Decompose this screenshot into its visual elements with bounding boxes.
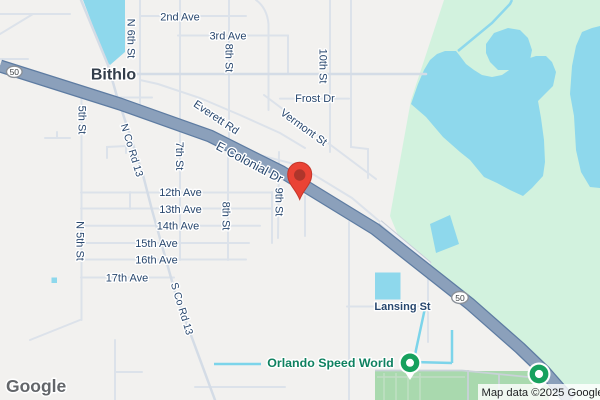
svg-text:Lansing St: Lansing St — [374, 301, 431, 313]
svg-text:13th Ave: 13th Ave — [159, 204, 202, 216]
svg-text:Orlando Speed World: Orlando Speed World — [267, 356, 393, 370]
svg-text:Map data ©2025 Google: Map data ©2025 Google — [482, 387, 600, 399]
svg-text:12th Ave: 12th Ave — [159, 187, 202, 199]
svg-text:14th Ave: 14th Ave — [157, 221, 200, 233]
svg-text:9th St: 9th St — [273, 188, 285, 217]
svg-text:15th Ave: 15th Ave — [135, 238, 178, 250]
svg-text:16th Ave: 16th Ave — [135, 255, 178, 267]
svg-text:8th St: 8th St — [220, 202, 232, 231]
svg-text:17th Ave: 17th Ave — [106, 272, 149, 284]
svg-text:2nd Ave: 2nd Ave — [160, 12, 200, 24]
svg-text:N 6th St: N 6th St — [125, 19, 137, 59]
svg-text:Frost Dr: Frost Dr — [295, 93, 335, 105]
svg-text:10th St: 10th St — [317, 49, 329, 84]
svg-text:50: 50 — [455, 293, 465, 303]
svg-text:N 5th St: N 5th St — [74, 221, 86, 261]
svg-text:50: 50 — [10, 67, 20, 77]
svg-text:5th St: 5th St — [76, 106, 88, 135]
svg-text:Google: Google — [6, 376, 67, 396]
svg-text:3rd Ave: 3rd Ave — [209, 31, 246, 43]
svg-text:7th St: 7th St — [173, 142, 185, 171]
svg-text:8th St: 8th St — [223, 44, 235, 73]
svg-text:Bithlo: Bithlo — [91, 67, 137, 84]
